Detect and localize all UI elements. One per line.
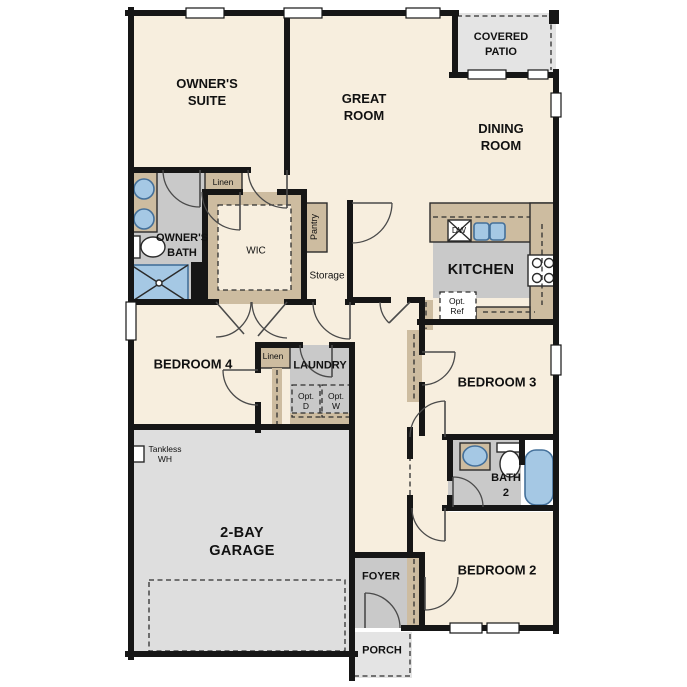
owners-bath-sink-1 (134, 179, 154, 199)
stove-burner-3 (533, 274, 542, 283)
patio-corner-post (549, 10, 559, 24)
window-great-room-1 (284, 8, 322, 18)
patio-window (528, 70, 548, 79)
window-bedroom2-2 (487, 623, 519, 633)
storage-label: Storage (309, 270, 344, 283)
great-room-label: GREAT ROOM (342, 90, 387, 124)
pantry-label: Pantry (309, 214, 321, 240)
bath2-tub (525, 450, 553, 505)
window-dining (551, 93, 561, 117)
garage-label: 2-BAY GARAGE (209, 524, 274, 560)
stove-burner-4 (545, 274, 554, 283)
owners-bath-label: OWNER'S BATH (156, 231, 208, 261)
window-bedroom3 (551, 345, 561, 375)
opt-dryer-label: Opt. D (298, 391, 314, 411)
patio-slider-door (468, 70, 506, 79)
bedroom4-label: BEDROOM 4 (154, 356, 233, 373)
dishwasher-label: DW (452, 225, 466, 235)
window-bedroom2-1 (450, 623, 482, 633)
shower-wall-stub (191, 262, 204, 302)
window-owners-suite (186, 8, 224, 18)
wic-label: WIC (246, 245, 265, 258)
tankless-wh-label: Tankless WH (148, 444, 181, 464)
bath2-wall-stub (519, 440, 525, 465)
owners-shower-drain (156, 280, 162, 286)
window-bedroom4 (126, 302, 136, 340)
owners-bath-sink-2 (134, 209, 154, 229)
kitchen-sink-right (490, 223, 505, 240)
stove-burner-2 (545, 259, 554, 268)
bedroom2-label: BEDROOM 2 (458, 562, 537, 579)
linen-upper-label: Linen (213, 177, 234, 187)
kitchen-sink-left (474, 223, 489, 240)
bedroom3-label: BEDROOM 3 (458, 374, 537, 391)
stove-burner-1 (533, 259, 542, 268)
owners-suite-label: OWNER'S SUITE (176, 75, 238, 109)
kitchen-label: KITCHEN (448, 261, 515, 279)
porch-label: PORCH (362, 644, 402, 659)
covered-patio-label: COVERED PATIO (474, 30, 528, 60)
foyer-label: FOYER (362, 570, 400, 585)
floor-plan: OWNER'S SUITE GREAT ROOM COVERED PATIO D… (0, 0, 687, 687)
bath2-sink (463, 446, 487, 466)
opt-washer-label: Opt. W (328, 391, 344, 411)
linen-hall-label: Linen (263, 351, 284, 361)
opt-ref-label: Opt. Ref (449, 296, 465, 316)
laundry-label: LAUNDRY (293, 359, 346, 374)
bath2-label: BATH 2 (491, 471, 521, 501)
window-great-room-2 (406, 8, 440, 18)
room-vestibule (408, 430, 448, 512)
dining-room-label: DINING ROOM (478, 120, 524, 154)
